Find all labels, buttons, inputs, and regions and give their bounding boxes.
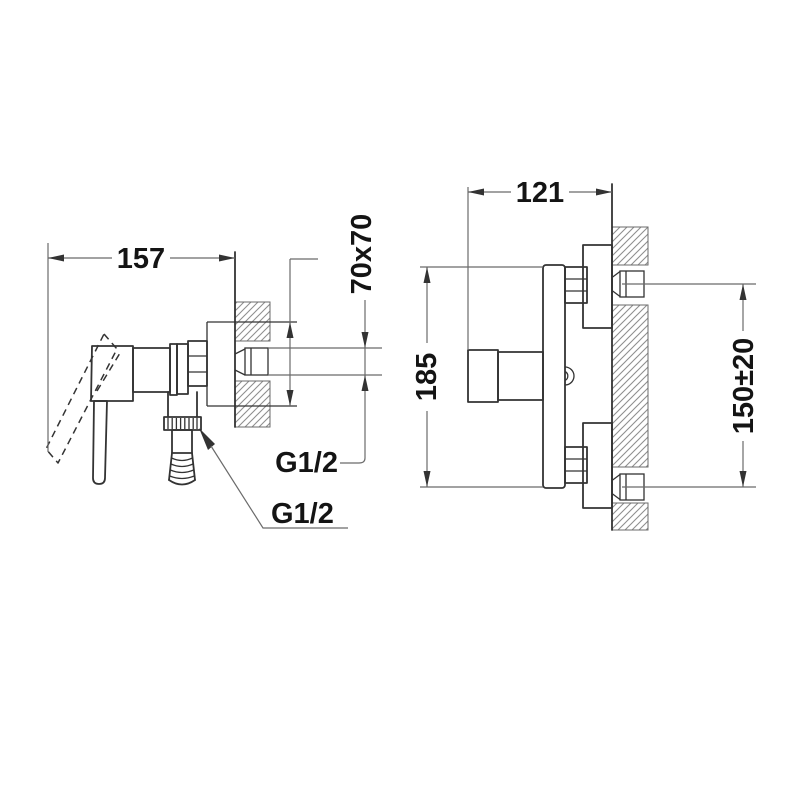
dim-185-label: 185	[411, 353, 443, 401]
wall-hatch-top	[612, 227, 648, 265]
handle-base	[498, 352, 543, 400]
outlet-nipple	[172, 430, 192, 453]
hose-barb-ribbed	[169, 453, 195, 485]
arrowhead-right	[596, 189, 612, 196]
wall-hex-nut	[188, 341, 207, 386]
mixer-body-side	[91, 341, 207, 401]
dim-121-label: 121	[516, 177, 564, 209]
dim-height: 185	[410, 267, 543, 487]
arrowhead-left	[48, 255, 64, 262]
outlet-dome	[565, 367, 574, 385]
supply-pipe-side	[235, 348, 382, 375]
cartridge-housing	[91, 346, 133, 401]
hose-outlet	[164, 392, 201, 485]
arrowhead-up	[362, 375, 369, 391]
dim-70x70-label: 70x70	[346, 214, 378, 295]
body-collar	[177, 344, 188, 394]
wall-hatch-bottom	[612, 503, 648, 530]
technical-drawing-page: 157 70x70 G1/2 G1/2	[0, 0, 800, 800]
wall-hatch-middle	[612, 305, 648, 467]
leader-arrowhead	[199, 428, 215, 450]
g12-inlet-label: G1/2	[275, 447, 338, 479]
dim-depth: 121	[468, 177, 612, 350]
coupling-nut-knurled	[164, 417, 201, 430]
lever-solid	[93, 401, 107, 484]
wall-section-side	[235, 252, 270, 427]
wall-section-front	[612, 184, 648, 530]
arrowhead-down	[287, 390, 294, 406]
mixer-dimension-drawing: 157 70x70 G1/2 G1/2	[0, 0, 800, 800]
leader-line	[340, 300, 365, 463]
dim-150-label: 150±20	[728, 338, 760, 435]
body-slab	[543, 265, 565, 488]
g12-outlet-label: G1/2	[271, 498, 334, 530]
wall-hatch-lower	[235, 381, 270, 427]
dim-157-label: 157	[117, 243, 165, 275]
dimension-line	[290, 259, 318, 406]
arrowhead-left	[468, 189, 484, 196]
arrowhead-up	[740, 284, 747, 300]
arrowhead-down	[424, 471, 431, 487]
arrowhead-down	[362, 332, 369, 348]
arrowhead-up	[287, 322, 294, 338]
body-ring	[170, 344, 177, 395]
handle-knob	[468, 350, 498, 402]
body-cylinder	[133, 348, 170, 392]
arrowhead-down	[740, 471, 747, 487]
arrowhead-right	[219, 255, 235, 262]
front-view: 121 185 150±20	[410, 177, 760, 530]
dim-plate: 70x70	[287, 214, 379, 406]
mixer-body-front	[468, 265, 574, 488]
lever-handle	[46, 334, 120, 484]
side-view: 157 70x70 G1/2 G1/2	[46, 214, 382, 530]
dim-outlet-thread: G1/2	[199, 428, 348, 530]
arrowhead-up	[424, 267, 431, 283]
